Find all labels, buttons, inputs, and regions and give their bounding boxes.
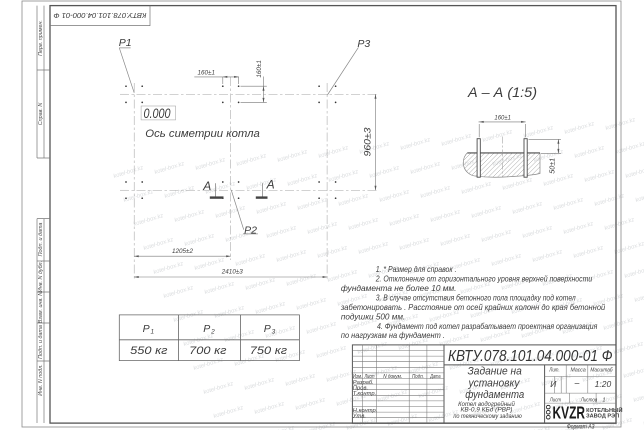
- svg-text:Задание на: Задание на: [468, 366, 522, 378]
- svg-text:A: A: [202, 179, 211, 193]
- svg-text:Справ. N: Справ. N: [38, 103, 44, 126]
- svg-text:Подп.: Подп.: [412, 374, 424, 380]
- svg-text:2: 2: [210, 329, 215, 336]
- svg-text:Дата: Дата: [430, 374, 442, 380]
- svg-text:фундамента не более 10 мм.: фундамента не более 10 мм.: [341, 283, 457, 293]
- svg-text:1: 1: [602, 397, 605, 403]
- svg-text:P: P: [143, 323, 150, 335]
- svg-text:2410±3: 2410±3: [221, 269, 243, 276]
- svg-text:P: P: [203, 323, 210, 335]
- svg-text:Формат А3: Формат А3: [567, 424, 595, 430]
- svg-text:КОТЕЛЬНЫЙ: КОТЕЛЬНЫЙ: [586, 406, 622, 414]
- svg-text:Т.контр.: Т.контр.: [353, 391, 376, 397]
- svg-text:установку: установку: [468, 377, 521, 389]
- svg-text:забетонировать . Расстояние от: забетонировать . Расстояние от осей край…: [340, 302, 605, 312]
- svg-text:И: И: [550, 379, 557, 389]
- svg-text:960±3: 960±3: [363, 128, 373, 157]
- svg-text:–: –: [574, 378, 580, 388]
- svg-text:Подп. и дата: Подп. и дата: [38, 223, 44, 257]
- svg-text:по нагрузкам на фундамент .: по нагрузкам на фундамент .: [341, 330, 445, 340]
- svg-text:3: 3: [272, 329, 276, 336]
- svg-text:1: 1: [151, 329, 155, 336]
- svg-text:Лит.: Лит.: [549, 367, 560, 373]
- svg-text:N докум.: N докум.: [383, 374, 402, 380]
- svg-text:фундамента: фундамента: [465, 389, 524, 401]
- svg-text:KVZR: KVZR: [553, 403, 586, 423]
- svg-text:700 кг: 700 кг: [189, 345, 227, 357]
- svg-text:750 кг: 750 кг: [250, 345, 288, 357]
- svg-text:A: A: [266, 178, 275, 192]
- svg-text:160±1: 160±1: [198, 70, 216, 77]
- svg-text:Масса: Масса: [571, 367, 587, 373]
- svg-text:Масштаб: Масштаб: [590, 367, 613, 373]
- svg-text:550 кг: 550 кг: [130, 345, 168, 357]
- svg-text:3. В случае отсутствия бетонн: 3. В случае отсутствия бетонного пола пл…: [376, 293, 576, 303]
- svg-text:Утв.: Утв.: [352, 414, 366, 420]
- svg-text:КВТУ.078.101.04.000-01 Ф: КВТУ.078.101.04.000-01 Ф: [448, 348, 613, 365]
- svg-text:50±1: 50±1: [548, 158, 557, 174]
- svg-text:0.000: 0.000: [144, 106, 171, 121]
- svg-text:Ось симетрии котла: Ось симетрии котла: [145, 128, 259, 140]
- svg-text:P2: P2: [244, 224, 257, 236]
- svg-text:Инв. N подл.: Инв. N подл.: [38, 364, 44, 396]
- svg-text:2. Отклонение от горизонтальн: 2. Отклонение от горизонтального уровня …: [375, 274, 593, 284]
- svg-text:Взам. инв. N: Взам. инв. N: [38, 292, 44, 324]
- svg-text:160±1: 160±1: [256, 60, 263, 78]
- svg-text:1:20: 1:20: [595, 379, 612, 389]
- svg-text:КВТУ.078.101.04.000-01 Ф: КВТУ.078.101.04.000-01 Ф: [53, 11, 146, 20]
- svg-text:ЗАВОД РЭП: ЗАВОД РЭП: [586, 414, 619, 420]
- svg-text:P: P: [264, 323, 271, 335]
- svg-text:Инв. N дубл.: Инв. N дубл.: [38, 261, 44, 292]
- svg-text:1. * Размер для справок .: 1. * Размер для справок .: [376, 264, 457, 274]
- svg-text:Перв. примен.: Перв. примен.: [38, 20, 44, 56]
- svg-text:по техническому заданию: по техническому заданию: [453, 412, 522, 420]
- svg-text:P3: P3: [357, 38, 370, 50]
- svg-text:А – А (1:5): А – А (1:5): [467, 84, 537, 100]
- svg-text:P1: P1: [119, 37, 132, 49]
- svg-text:160±1: 160±1: [494, 115, 511, 122]
- svg-text:1205±2: 1205±2: [172, 248, 193, 255]
- svg-text:Подп. и дата: Подп. и дата: [38, 325, 44, 359]
